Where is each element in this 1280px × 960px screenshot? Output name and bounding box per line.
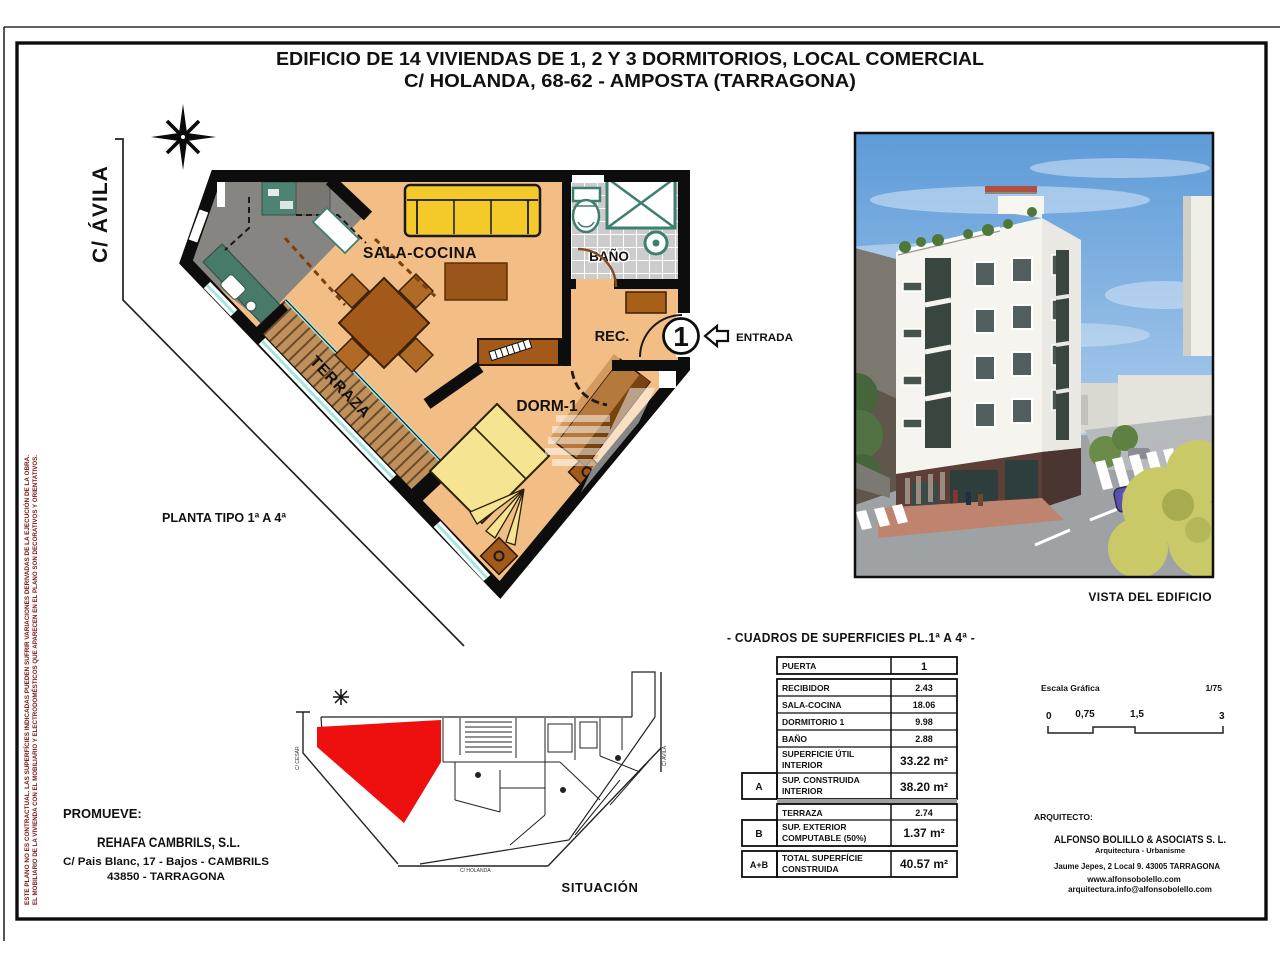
svg-text:Jaume Jepes, 2 Local 9. 43005: Jaume Jepes, 2 Local 9. 43005 TARRAGONA [1054,862,1220,871]
svg-text:TERRAZA: TERRAZA [782,808,823,818]
svg-text:3: 3 [1219,711,1225,722]
svg-text:1: 1 [673,321,689,352]
svg-text:SUP. EXTERIOR: SUP. EXTERIOR [782,822,847,832]
svg-text:ENTRADA: ENTRADA [736,332,793,344]
svg-text:B: B [755,829,762,840]
svg-text:DORM-1: DORM-1 [516,398,578,415]
svg-text:PROMUEVE:: PROMUEVE: [63,806,142,821]
svg-text:9.98: 9.98 [915,717,933,727]
svg-text:DORMITORIO 1: DORMITORIO 1 [782,717,844,727]
svg-text:38.20 m²: 38.20 m² [900,780,948,794]
svg-text:SITUACIÓN: SITUACIÓN [562,880,639,895]
svg-text:2.88: 2.88 [915,734,933,744]
svg-text:A+B: A+B [750,860,769,870]
svg-text:ESTE PLANO NO ES CONTRACTUAL.: ESTE PLANO NO ES CONTRACTUAL. LAS SUPERF… [22,455,31,905]
svg-text:SUPERFICIE ÚTIL: SUPERFICIE ÚTIL [782,748,854,759]
svg-text:43850 - TARRAGONA: 43850 - TARRAGONA [107,871,225,883]
svg-text:Arquitectura - Urbanisme: Arquitectura - Urbanisme [1095,846,1185,855]
svg-text:BAÑO: BAÑO [782,734,807,744]
svg-text:INTERIOR: INTERIOR [782,786,823,796]
svg-text:SUP. CONSTRUIDA: SUP. CONSTRUIDA [782,775,860,785]
svg-text:- CUADROS DE SUPERFICIES PL.1ª: - CUADROS DE SUPERFICIES PL.1ª A 4ª - [727,631,975,645]
svg-text:www.alfonsobolello.com: www.alfonsobolello.com [1086,875,1181,884]
svg-text:INTERIOR: INTERIOR [782,760,823,770]
svg-text:arquitectura.info@alfonsobolel: arquitectura.info@alfonsobolello.com [1068,885,1212,894]
svg-text:REHAFA CAMBRILS, S.L.: REHAFA CAMBRILS, S.L. [97,834,240,850]
svg-text:Escala Gráfica: Escala Gráfica [1041,683,1100,693]
svg-text:2.43: 2.43 [915,683,933,693]
svg-text:ALFONSO BOLILLO & ASOCIATS S.: ALFONSO BOLILLO & ASOCIATS S. L. [1054,834,1226,846]
svg-text:BAÑO: BAÑO [589,249,629,264]
svg-text:SALA-COCINA: SALA-COCINA [363,245,477,262]
svg-text:REC.: REC. [595,329,630,345]
svg-text:C/ Pais Blanc, 17 - Bajos - CA: C/ Pais Blanc, 17 - Bajos - CAMBRILS [63,856,269,868]
svg-text:0,75: 0,75 [1075,709,1095,720]
svg-text:TOTAL SUPERFÍCIE: TOTAL SUPERFÍCIE [782,853,863,863]
svg-text:2.74: 2.74 [915,808,933,818]
svg-text:C/ HOLANDA: C/ HOLANDA [460,868,491,874]
svg-text:RECIBIDOR: RECIBIDOR [782,683,830,693]
svg-text:18.06: 18.06 [913,700,936,710]
svg-text:C/ AVILA: C/ AVILA [662,745,668,766]
svg-text:VISTA DEL EDIFICIO: VISTA DEL EDIFICIO [1088,590,1212,604]
svg-text:A: A [755,782,762,793]
svg-text:ARQUITECTO:: ARQUITECTO: [1034,812,1093,822]
svg-text:EDIFICIO DE 14 VIVIENDAS DE 1,: EDIFICIO DE 14 VIVIENDAS DE 1, 2 Y 3 DOR… [276,48,984,69]
svg-text:C/ HOLANDA, 68-62 - AMPOSTA (T: C/ HOLANDA, 68-62 - AMPOSTA (TARRAGONA) [404,71,856,91]
svg-text:PLANTA TIPO 1ª A 4ª: PLANTA TIPO 1ª A 4ª [162,511,286,525]
svg-text:PUERTA: PUERTA [782,661,816,671]
svg-text:SALA-COCINA: SALA-COCINA [782,700,842,710]
svg-text:C/ CESAR: C/ CESAR [295,746,301,770]
svg-text:33.22 m²: 33.22 m² [900,754,948,768]
svg-text:EL MOBILIARIO DE LA VIVIENDA C: EL MOBILIARIO DE LA VIVIENDA CON EL MOBI… [30,455,39,905]
svg-text:1/75: 1/75 [1205,683,1222,693]
svg-text:1: 1 [921,661,927,673]
svg-text:0: 0 [1046,711,1052,722]
svg-text:1,5: 1,5 [1130,709,1144,720]
svg-text:1.37 m²: 1.37 m² [903,826,944,840]
svg-text:CONSTRUIDA: CONSTRUIDA [782,864,839,874]
svg-text:C/ ÁVILA: C/ ÁVILA [89,165,112,263]
svg-text:COMPUTABLE (50%): COMPUTABLE (50%) [782,833,867,843]
svg-text:40.57 m²: 40.57 m² [900,857,948,871]
